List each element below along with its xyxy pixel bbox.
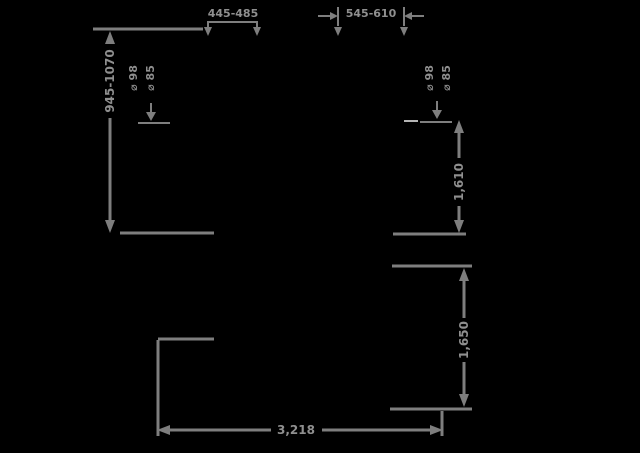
dim-right-detail-lower-label: ⌀ 85 — [440, 65, 453, 91]
arrowhead-down-icon — [105, 220, 115, 233]
arrowhead-down-icon — [146, 112, 156, 121]
arrowhead-up-icon — [454, 120, 464, 133]
dim-right-detail-upper-label: ⌀ 98 — [423, 65, 436, 91]
dim-bottom-length-label: 3,218 — [277, 423, 315, 437]
arrowhead-left-icon — [404, 12, 412, 20]
arrowhead-down-icon — [454, 220, 464, 233]
arrowhead-up-icon — [105, 31, 115, 44]
dim-left-detail-lower-label: ⌀ 85 — [144, 65, 157, 91]
arrowhead-down-icon — [459, 394, 469, 407]
dim-left-height-range-label: 945-1070 — [103, 49, 117, 112]
dim-top-left-width-label: 445-485 — [208, 7, 259, 20]
arrowhead-down-icon — [400, 27, 408, 36]
arrowhead-down-icon — [253, 27, 261, 36]
arrowhead-down-icon — [432, 110, 442, 119]
dim-left-detail-upper-label: ⌀ 98 — [127, 65, 140, 91]
arrowhead-down-icon — [204, 27, 212, 36]
dim-right-lower-height-label: 1,650 — [457, 321, 471, 359]
dim-top-right-width-label: 545-610 — [346, 7, 397, 20]
arrowhead-down-icon — [334, 27, 342, 36]
arrowhead-up-icon — [459, 268, 469, 281]
dimension-bracket-top-left — [208, 22, 257, 31]
dim-right-upper-height-label: 1,610 — [452, 163, 466, 201]
arrowhead-right-icon — [330, 12, 338, 20]
dimension-drawing: 445-485 545-610 945-1070 ⌀ 98 ⌀ 85 ⌀ 98 … — [0, 0, 640, 453]
dimension-drawing-canvas: 445-485 545-610 945-1070 ⌀ 98 ⌀ 85 ⌀ 98 … — [0, 0, 640, 453]
